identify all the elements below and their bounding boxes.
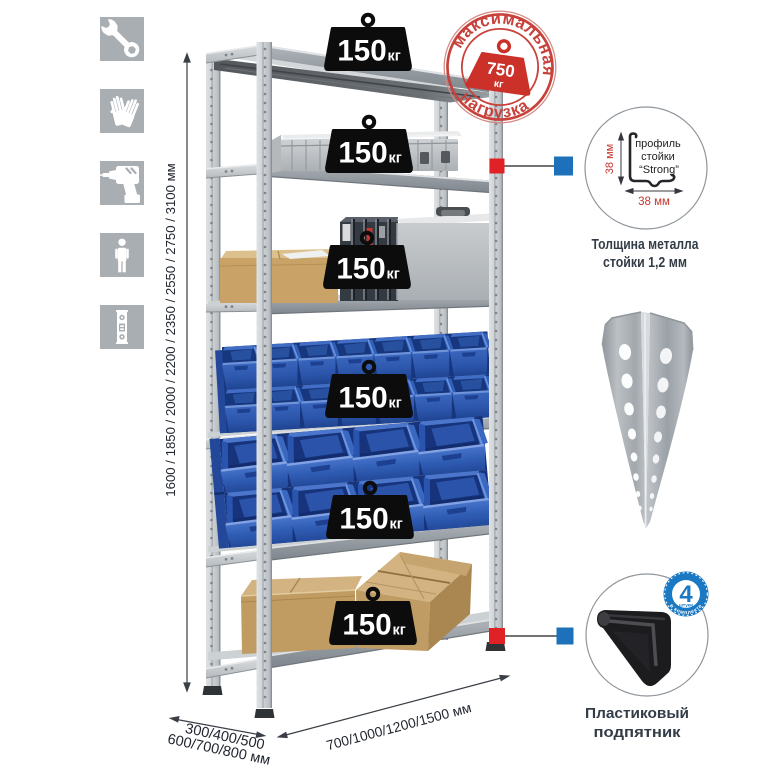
svg-text:38 мм: 38 мм bbox=[638, 196, 670, 208]
svg-text:стойки 1,2 мм: стойки 1,2 мм bbox=[603, 254, 687, 271]
svg-text:Пластиковый: Пластиковый bbox=[585, 705, 689, 722]
svg-text:стойки: стойки bbox=[641, 151, 675, 163]
svg-text:подпятник: подпятник bbox=[594, 724, 682, 741]
svg-text:Толщина металла: Толщина металла bbox=[592, 236, 700, 253]
svg-text:“Strong”: “Strong” bbox=[639, 164, 679, 176]
svg-text:750: 750 bbox=[485, 58, 516, 81]
svg-text:1600 / 1850 / 2000 / 2200 / 23: 1600 / 1850 / 2000 / 2200 / 2350 / 2550 … bbox=[163, 163, 178, 496]
svg-text:штуки: штуки bbox=[679, 603, 693, 608]
svg-text:38 мм: 38 мм bbox=[604, 144, 616, 174]
svg-text:профиль: профиль bbox=[635, 138, 681, 150]
svg-text:700/1000/1200/1500 мм: 700/1000/1200/1500 мм bbox=[325, 700, 473, 753]
svg-text:кг: кг bbox=[493, 78, 504, 90]
